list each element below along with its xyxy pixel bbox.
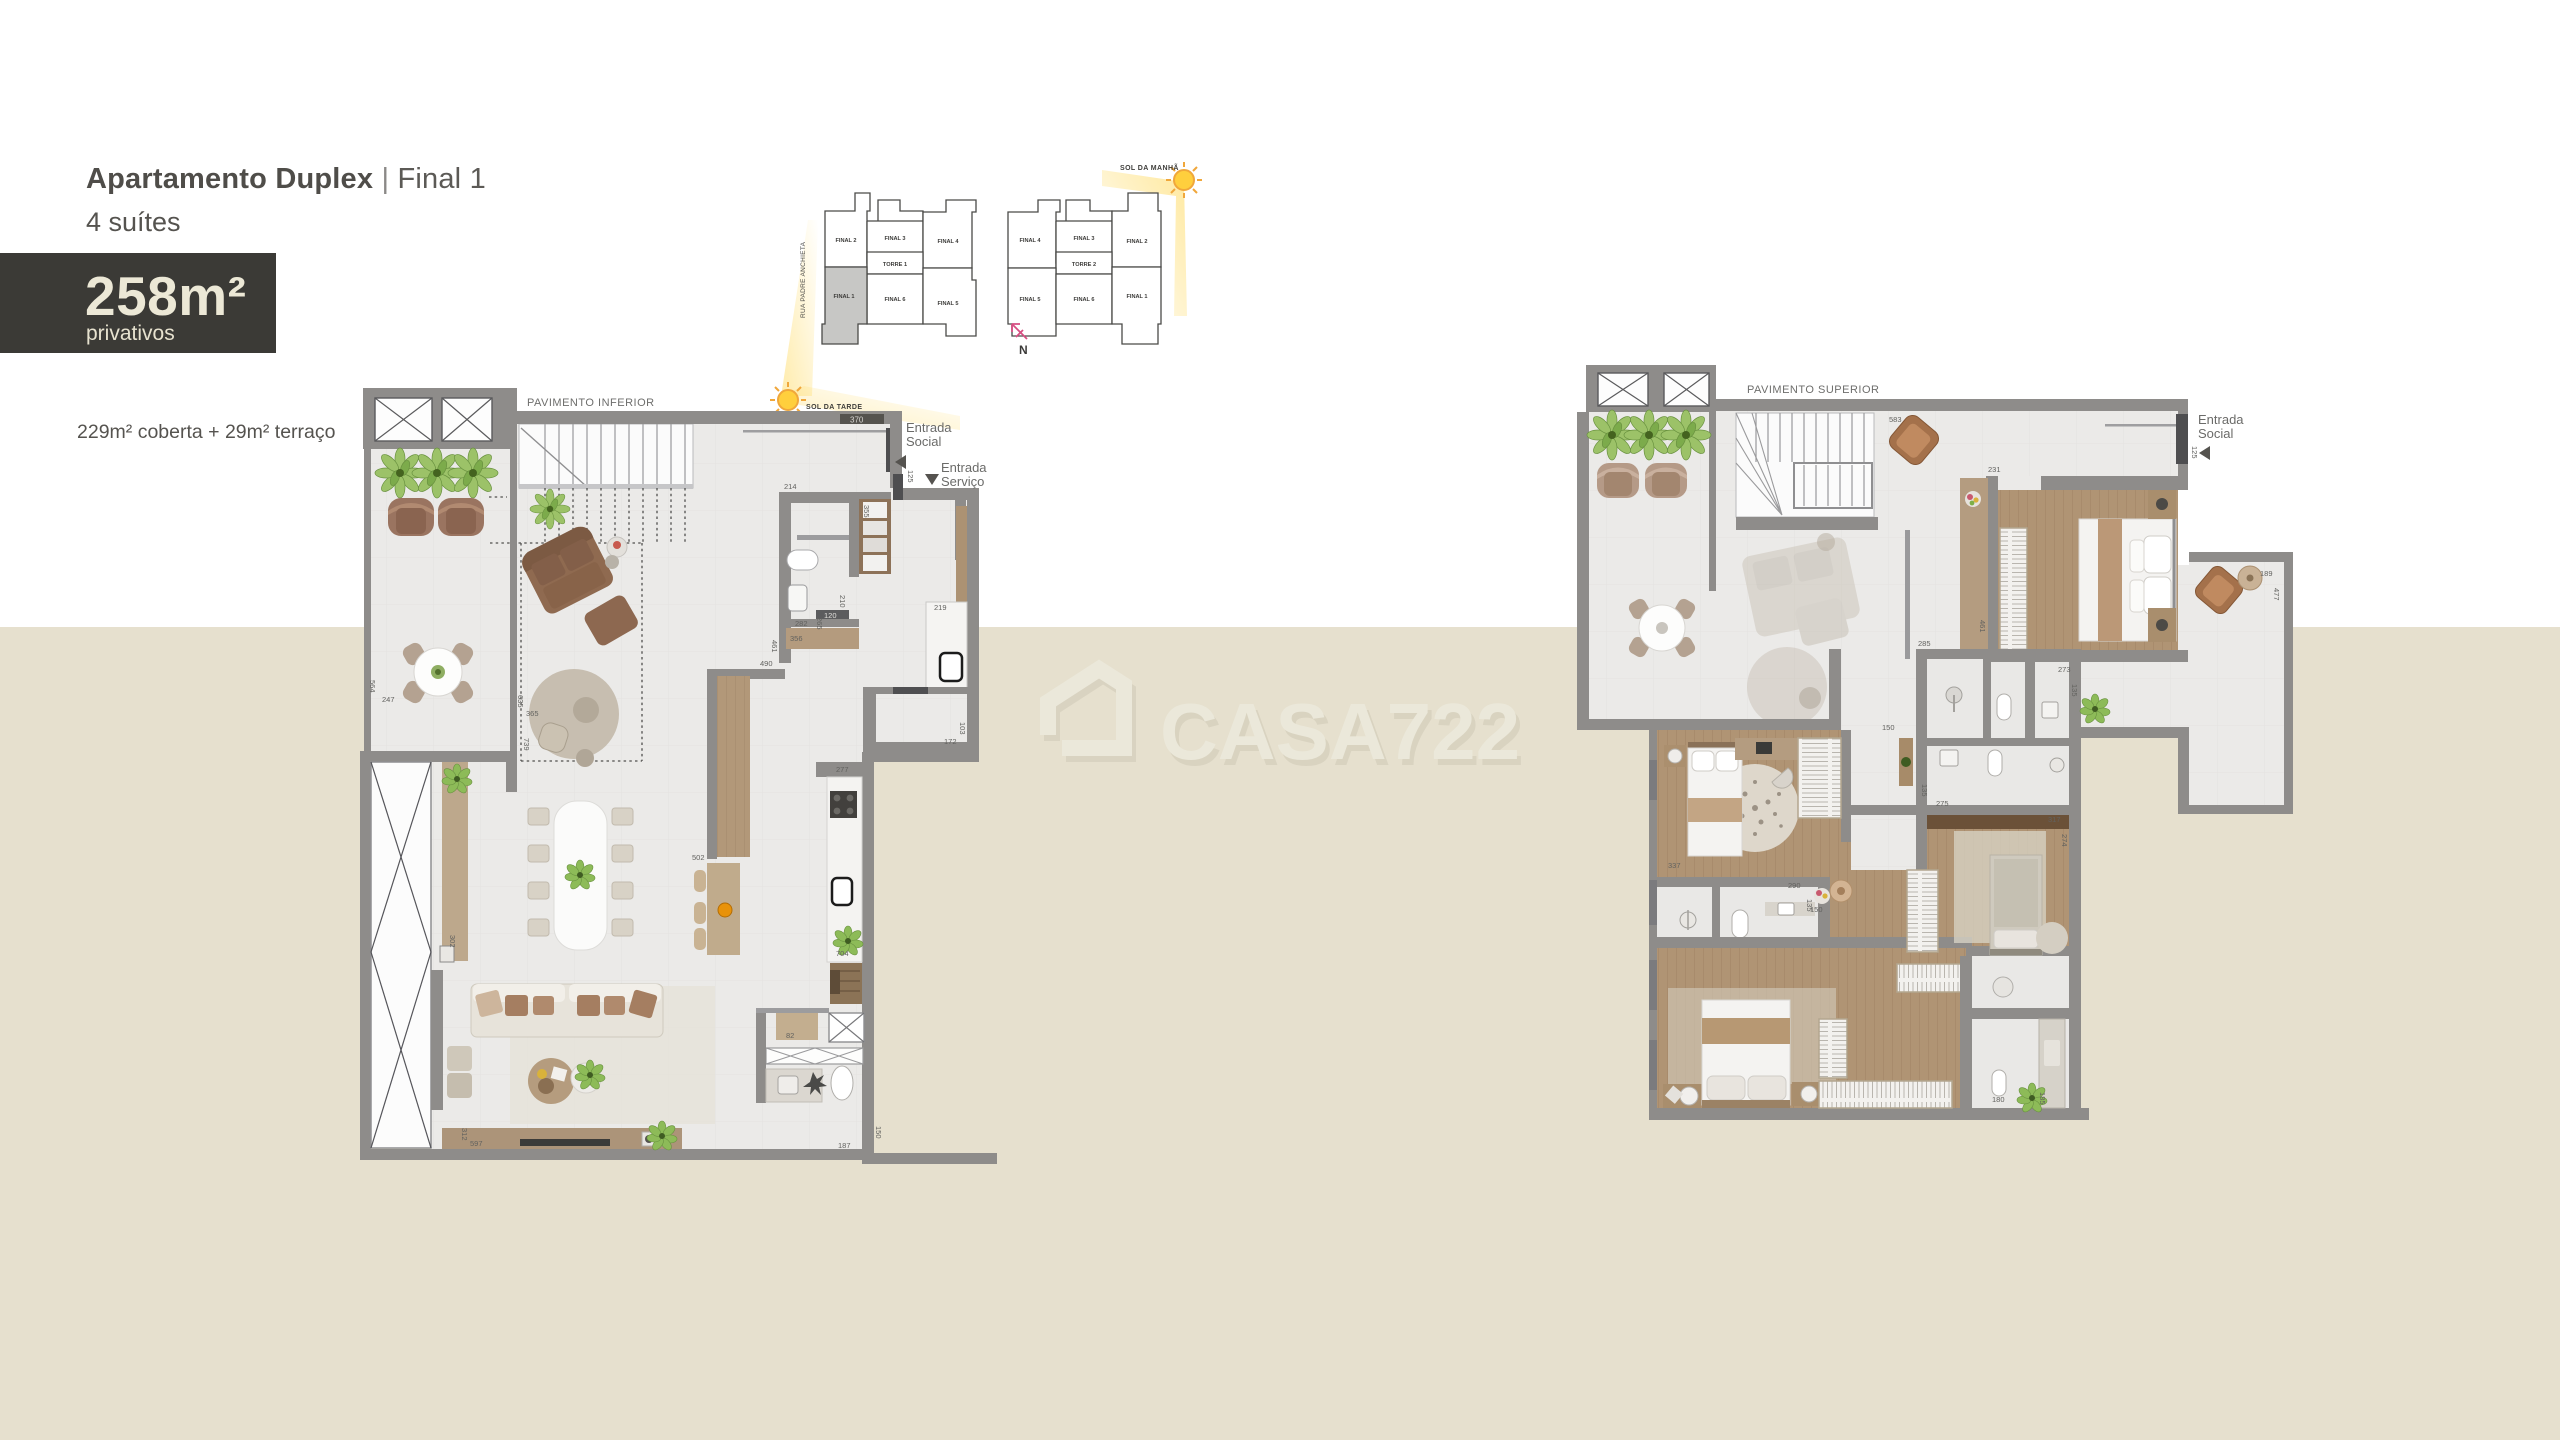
svg-text:285: 285 [1918,639,1931,648]
svg-text:103: 103 [958,722,967,735]
svg-text:FINAL 3: FINAL 3 [1073,236,1094,242]
svg-text:135: 135 [2070,684,2079,697]
svg-text:189: 189 [2260,569,2273,578]
svg-text:FINAL 3: FINAL 3 [884,236,905,242]
svg-text:TORRE 2: TORRE 2 [1072,262,1096,268]
svg-text:Social: Social [2198,426,2234,441]
svg-text:490: 490 [760,659,773,668]
svg-text:FINAL 1: FINAL 1 [1126,294,1147,300]
svg-text:Serviço: Serviço [941,474,984,489]
svg-text:125: 125 [906,470,915,483]
svg-text:135: 135 [1920,784,1929,797]
svg-text:219: 219 [934,603,947,612]
svg-text:317: 317 [2048,815,2061,824]
svg-text:564: 564 [368,680,377,693]
svg-text:Social: Social [906,434,942,449]
svg-text:Entrada: Entrada [906,420,952,435]
svg-text:FINAL 2: FINAL 2 [1126,239,1147,245]
svg-text:277: 277 [836,765,849,774]
svg-text:312: 312 [460,1128,469,1141]
svg-text:231: 231 [1988,465,2001,474]
svg-text:274: 274 [2060,834,2069,847]
svg-text:PAVIMENTO SUPERIOR: PAVIMENTO SUPERIOR [1747,384,1879,396]
svg-text:172: 172 [944,737,957,746]
svg-text:337: 337 [1668,861,1681,870]
svg-text:RUA PADRE ANCHIETA: RUA PADRE ANCHIETA [800,241,807,318]
svg-text:739: 739 [522,738,531,751]
svg-text:185: 185 [2038,1092,2047,1105]
svg-text:PAVIMENTO INFERIOR: PAVIMENTO INFERIOR [527,397,655,409]
svg-text:FINAL 5: FINAL 5 [1019,297,1040,303]
svg-text:FINAL 1: FINAL 1 [833,294,854,300]
svg-text:FINAL 4: FINAL 4 [1019,238,1041,244]
svg-text:180: 180 [1992,1095,2005,1104]
svg-text:247: 247 [382,695,395,704]
svg-text:704: 704 [836,949,849,958]
svg-text:365: 365 [526,709,539,718]
svg-text:273: 273 [2058,665,2071,674]
svg-text:282: 282 [795,619,808,628]
svg-text:597: 597 [470,1139,483,1148]
svg-text:210: 210 [838,595,847,608]
svg-text:FINAL 4: FINAL 4 [937,239,959,245]
svg-text:N: N [1019,343,1028,357]
svg-text:150: 150 [1810,905,1823,914]
svg-text:FINAL 2: FINAL 2 [835,238,856,244]
svg-text:461: 461 [770,640,779,653]
svg-text:FINAL 6: FINAL 6 [1073,297,1094,303]
svg-text:502: 502 [692,853,705,862]
svg-text:150: 150 [1882,723,1895,732]
svg-text:FINAL 5: FINAL 5 [937,301,958,307]
svg-text:Entrada: Entrada [2198,412,2244,427]
svg-text:Entrada: Entrada [941,460,987,475]
svg-text:125: 125 [2190,446,2199,459]
svg-text:583: 583 [1889,415,1902,424]
svg-text:302: 302 [448,935,457,948]
svg-text:290: 290 [1788,881,1801,890]
svg-text:CASA722: CASA722 [1160,687,1520,776]
svg-text:150: 150 [874,1126,883,1139]
svg-text:355: 355 [862,505,871,518]
svg-text:275: 275 [1936,799,1949,808]
svg-text:82: 82 [786,1031,794,1040]
svg-text:370: 370 [850,416,864,425]
svg-text:635: 635 [516,695,525,708]
svg-text:FINAL 6: FINAL 6 [884,297,905,303]
svg-text:461: 461 [1978,620,1987,633]
svg-text:120: 120 [824,611,837,620]
svg-text:TORRE 1: TORRE 1 [883,262,907,268]
svg-text:477: 477 [2272,588,2281,601]
svg-text:356: 356 [790,634,803,643]
svg-text:187: 187 [838,1141,851,1150]
svg-text:265: 265 [815,617,824,630]
svg-text:SOL DA MANHÃ: SOL DA MANHÃ [1120,163,1179,172]
svg-text:214: 214 [784,482,797,491]
